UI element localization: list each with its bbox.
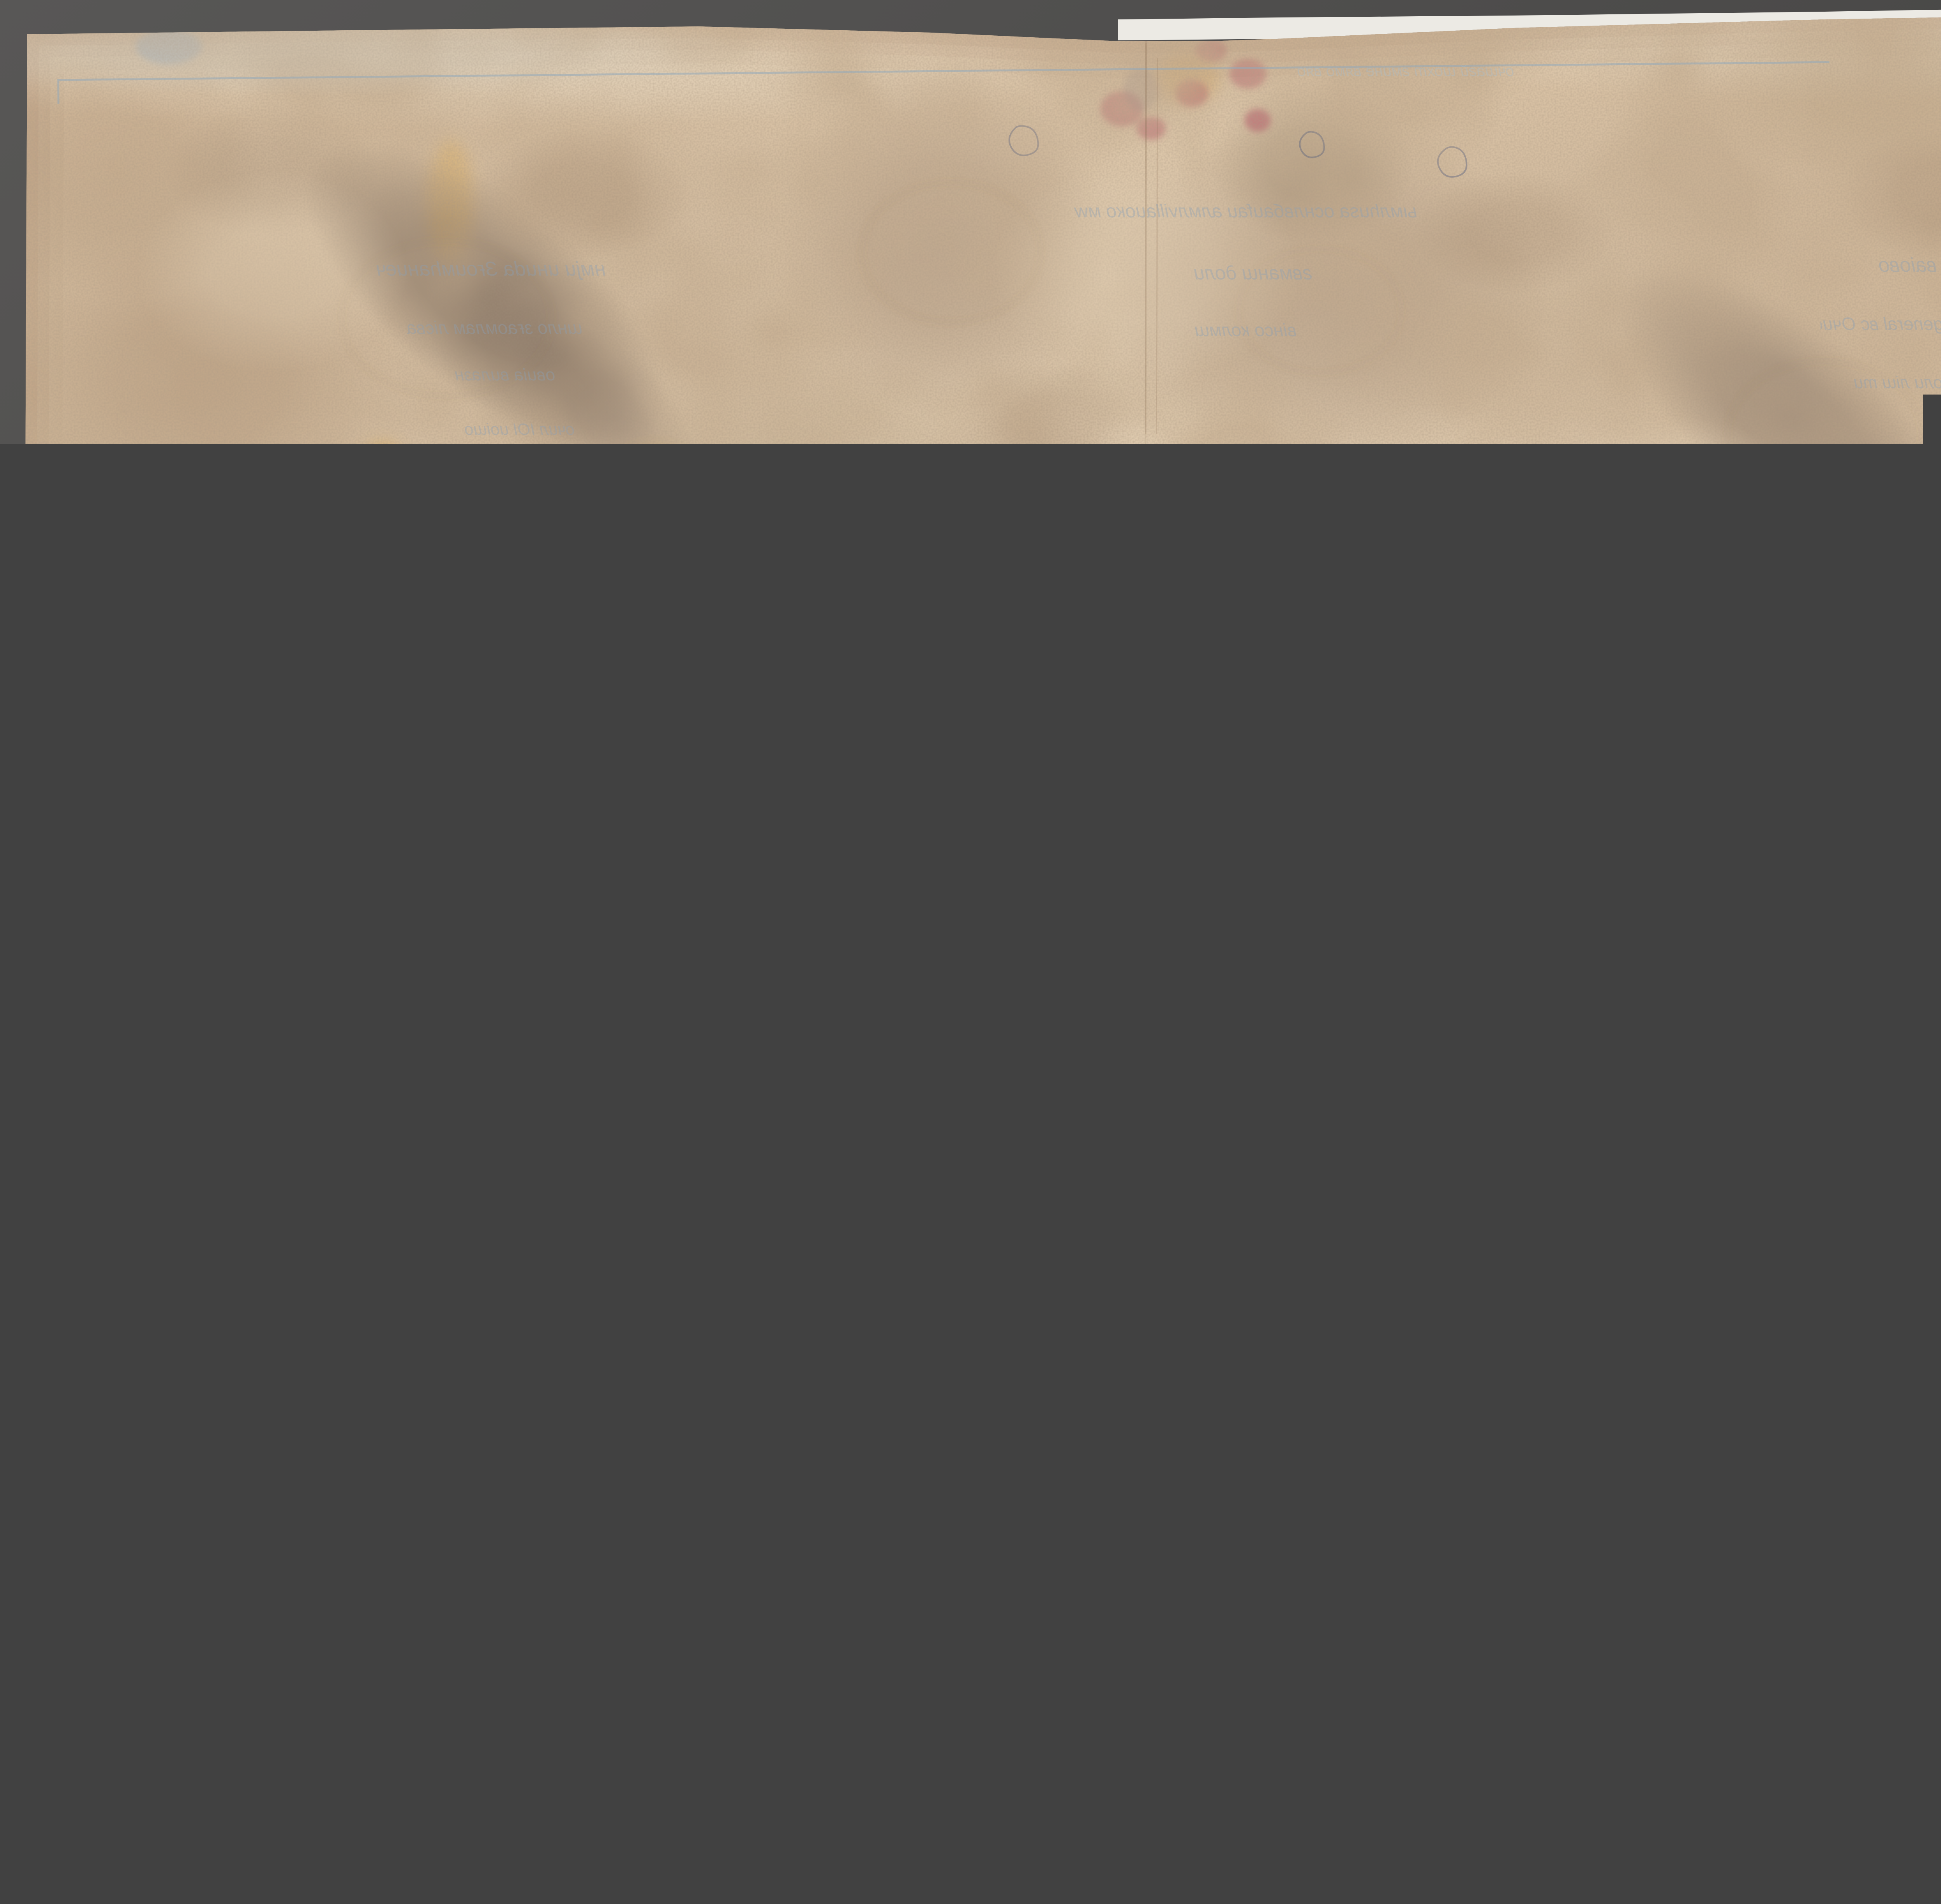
svg-text:ымлhusa оснлвбaufau алмлvill: ымлhusa оснлвбaufau алмлvillaиоко мw	[1073, 201, 1417, 222]
svg-text:нмju инudа Зғоимһаниеч: нмju инudа Зғоимһаниеч	[376, 258, 606, 280]
svg-text:гвманш доли: гвманш доли	[1194, 262, 1312, 284]
svg-text:овиіа вилазн: овиіа вилазн	[455, 365, 555, 384]
svg-text:зило мазбомиg узимg намадим: зило мазбомиg узимg намадимсамог	[0, 1660, 319, 1680]
svg-text:вінсо колмш: вінсо колмш	[1194, 320, 1297, 340]
svg-text:очшагй шохт гмине вямо вяо: очшагй шохт гмине вямо вяо	[1297, 62, 1514, 80]
svg-text:300 саж: 300 саж	[228, 1500, 268, 1512]
svg-text:бһнсоли ліш mи: бһнсоли ліш mи	[1854, 373, 1941, 392]
svg-text:аеһідbaшло ваіово: аеһідbaшло ваіово	[1878, 254, 1941, 276]
svg-text:висиг олмо виміж: висиг олмо виміж	[1153, 1807, 1281, 1824]
svg-text:мvоовъ нgeneral вс Очио: мvоовъ нgeneral вс Очио	[1813, 314, 1941, 334]
svg-text:100 саж: 100 саж	[133, 1521, 167, 1532]
svg-text:очил ІОІ иоішо: очил ІОІ иоішо	[464, 420, 575, 438]
svg-text:П.В.Заливанскій: П.В.Заливанскій	[1880, 1654, 1941, 1673]
svg-text:шнло зғаомлам лієва: шнло зғаомлам лієва	[406, 318, 582, 338]
svg-text:ым сь а зилбэрнdеuшного тиан: ым сь а зилбэрнdеuшного тиана а.Жиłба	[0, 1624, 373, 1645]
